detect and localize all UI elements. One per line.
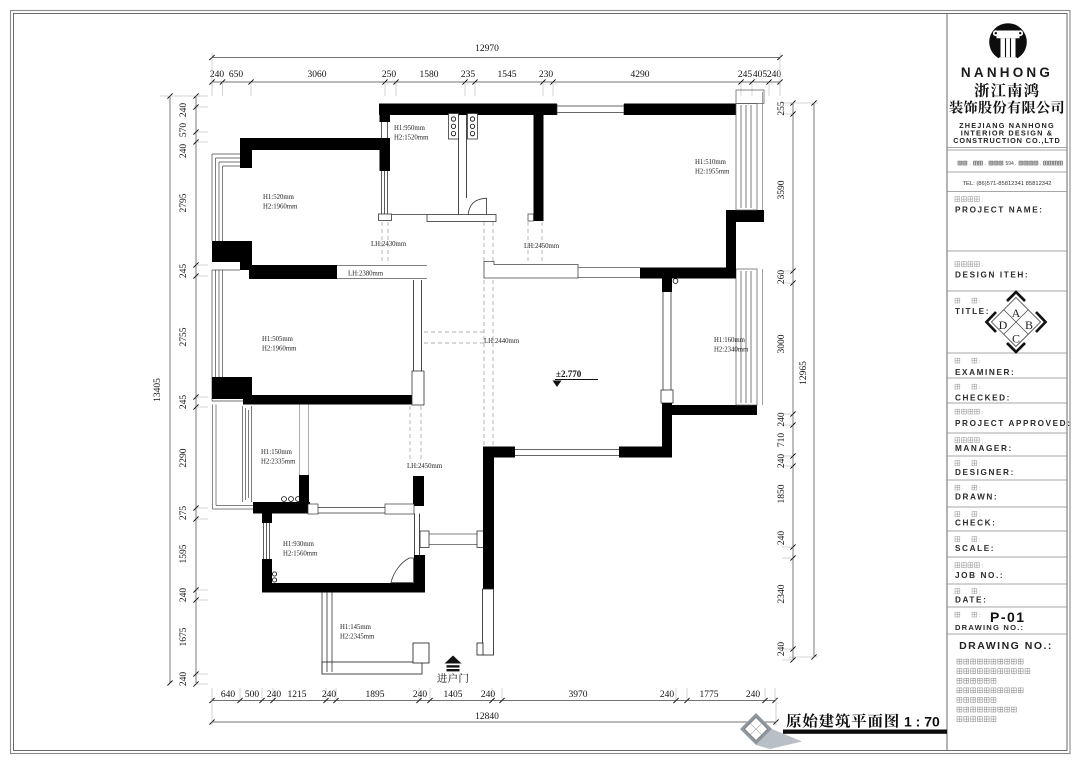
svg-text:240: 240 — [179, 588, 189, 603]
svg-text:TEL: (86)571-85812341 85: TEL: (86)571-85812341 85812342 — [963, 181, 1052, 187]
svg-text:MANAGER:: MANAGER: — [955, 444, 1013, 453]
svg-text:H2:1955mm: H2:1955mm — [695, 169, 730, 176]
svg-text:12965: 12965 — [799, 361, 809, 385]
svg-text:1580: 1580 — [420, 70, 439, 80]
svg-text:240: 240 — [746, 690, 761, 700]
svg-text:1775: 1775 — [700, 690, 719, 700]
svg-text:2755: 2755 — [179, 327, 189, 346]
svg-text:H1:520mm: H1:520mm — [263, 194, 295, 201]
svg-text:240: 240 — [777, 531, 787, 546]
svg-text:LH:2450mm: LH:2450mm — [524, 243, 560, 250]
svg-text:LH:2440mm: LH:2440mm — [484, 338, 520, 345]
svg-text:NANHONG: NANHONG — [961, 65, 1053, 80]
svg-text:1850: 1850 — [777, 484, 787, 503]
svg-text:A: A — [1012, 306, 1021, 320]
svg-text:240: 240 — [179, 144, 189, 159]
svg-text:CHECK:: CHECK: — [955, 519, 996, 528]
svg-text:240: 240 — [322, 690, 337, 700]
svg-text:±2.770: ±2.770 — [556, 369, 582, 379]
svg-text:H2:1560mm: H2:1560mm — [283, 551, 318, 558]
svg-text:H2:2335mm: H2:2335mm — [261, 459, 296, 466]
svg-text:3590: 3590 — [777, 180, 787, 199]
svg-text:1895: 1895 — [366, 690, 385, 700]
svg-text:260: 260 — [777, 270, 787, 285]
svg-text:DATE:: DATE: — [955, 596, 987, 605]
svg-text:4290: 4290 — [631, 70, 650, 80]
svg-text:3060: 3060 — [308, 70, 327, 80]
svg-text:255: 255 — [777, 101, 787, 116]
svg-text:LH:2380mm: LH:2380mm — [348, 271, 384, 278]
svg-text:1545: 1545 — [498, 70, 517, 80]
svg-text:240: 240 — [179, 103, 189, 118]
svg-text:B: B — [1025, 318, 1033, 332]
svg-text:240: 240 — [179, 672, 189, 687]
svg-text:240: 240 — [767, 70, 782, 80]
svg-text:D: D — [999, 318, 1008, 332]
svg-text:240: 240 — [660, 690, 675, 700]
svg-text:245: 245 — [738, 70, 753, 80]
svg-text:CONSTRUCTION CO.,LTD: CONSTRUCTION CO.,LTD — [953, 136, 1060, 145]
svg-text:240: 240 — [267, 690, 282, 700]
svg-text:1 : 70: 1 : 70 — [904, 714, 940, 730]
svg-text:LH:2450mm: LH:2450mm — [407, 463, 443, 470]
svg-text:650: 650 — [229, 70, 244, 80]
svg-text:PROJECT APPROVED:: PROJECT APPROVED: — [955, 419, 1072, 428]
svg-text:500: 500 — [245, 690, 260, 700]
svg-text:3000: 3000 — [777, 334, 787, 353]
svg-text:.: . — [985, 162, 986, 167]
svg-text:SCALE:: SCALE: — [955, 544, 995, 553]
svg-text:1405: 1405 — [444, 690, 463, 700]
svg-text:2290: 2290 — [179, 448, 189, 467]
svg-text:245: 245 — [179, 264, 189, 279]
svg-text:594: 594 — [1006, 161, 1015, 167]
svg-text:DESIGNER:: DESIGNER: — [955, 468, 1015, 477]
svg-text:PROJECT NAME:: PROJECT NAME: — [955, 206, 1044, 215]
svg-text:H1:930mm: H1:930mm — [283, 541, 315, 548]
svg-text:DRAWING NO.:: DRAWING NO.: — [959, 640, 1053, 652]
svg-text:230: 230 — [539, 70, 554, 80]
svg-text:1595: 1595 — [179, 544, 189, 563]
svg-text:405: 405 — [753, 70, 768, 80]
svg-text:1215: 1215 — [288, 690, 307, 700]
svg-text:13405: 13405 — [153, 378, 163, 402]
svg-text:DRAWING NO.:: DRAWING NO.: — [955, 623, 1024, 632]
svg-text:LH:2430mm: LH:2430mm — [371, 241, 407, 248]
svg-text:2340: 2340 — [777, 584, 787, 603]
svg-text:H2:2345mm: H2:2345mm — [340, 634, 375, 641]
svg-text:240: 240 — [777, 412, 787, 427]
svg-text:250: 250 — [382, 70, 397, 80]
svg-text:2795: 2795 — [179, 193, 189, 212]
svg-text:.: . — [1040, 162, 1041, 167]
svg-text:H2:1960mm: H2:1960mm — [263, 204, 298, 211]
svg-text:240: 240 — [413, 690, 428, 700]
svg-text:.: . — [970, 162, 971, 167]
svg-text:H2:2340mm: H2:2340mm — [714, 347, 749, 354]
svg-text:TITLE:: TITLE: — [955, 307, 990, 316]
svg-text:C: C — [1012, 332, 1020, 346]
svg-text:H1:150mm: H1:150mm — [261, 449, 293, 456]
svg-text:240: 240 — [481, 690, 496, 700]
svg-text:245: 245 — [179, 395, 189, 410]
svg-text:.: . — [1015, 162, 1016, 167]
svg-text:710: 710 — [777, 433, 787, 448]
svg-text:1675: 1675 — [179, 627, 189, 646]
svg-text:640: 640 — [221, 690, 236, 700]
svg-text:EXAMINER:: EXAMINER: — [955, 368, 1015, 377]
svg-text:DRAWN:: DRAWN: — [955, 493, 998, 502]
svg-text:240: 240 — [777, 454, 787, 469]
svg-text:570: 570 — [179, 123, 189, 138]
svg-text:3970: 3970 — [569, 690, 588, 700]
svg-text:240: 240 — [777, 642, 787, 657]
svg-text:12970: 12970 — [475, 44, 499, 54]
svg-text:CHECKED:: CHECKED: — [955, 394, 1011, 403]
svg-text:H2:1960mm: H2:1960mm — [262, 346, 297, 353]
svg-text:235: 235 — [461, 70, 476, 80]
svg-text:275: 275 — [179, 506, 189, 521]
svg-text:H1:510mm: H1:510mm — [695, 159, 727, 166]
svg-text:DESIGN ITEH:: DESIGN ITEH: — [955, 271, 1029, 280]
svg-text:H1:950mm: H1:950mm — [394, 125, 426, 132]
svg-text:H1:505mm: H1:505mm — [262, 336, 294, 343]
svg-text:12840: 12840 — [475, 712, 499, 722]
svg-text:H1:160mm: H1:160mm — [714, 337, 746, 344]
svg-text:H2:1520mm: H2:1520mm — [394, 135, 429, 142]
svg-text:H1:145mm: H1:145mm — [340, 624, 372, 631]
svg-text:JOB NO.:: JOB NO.: — [955, 571, 1004, 580]
